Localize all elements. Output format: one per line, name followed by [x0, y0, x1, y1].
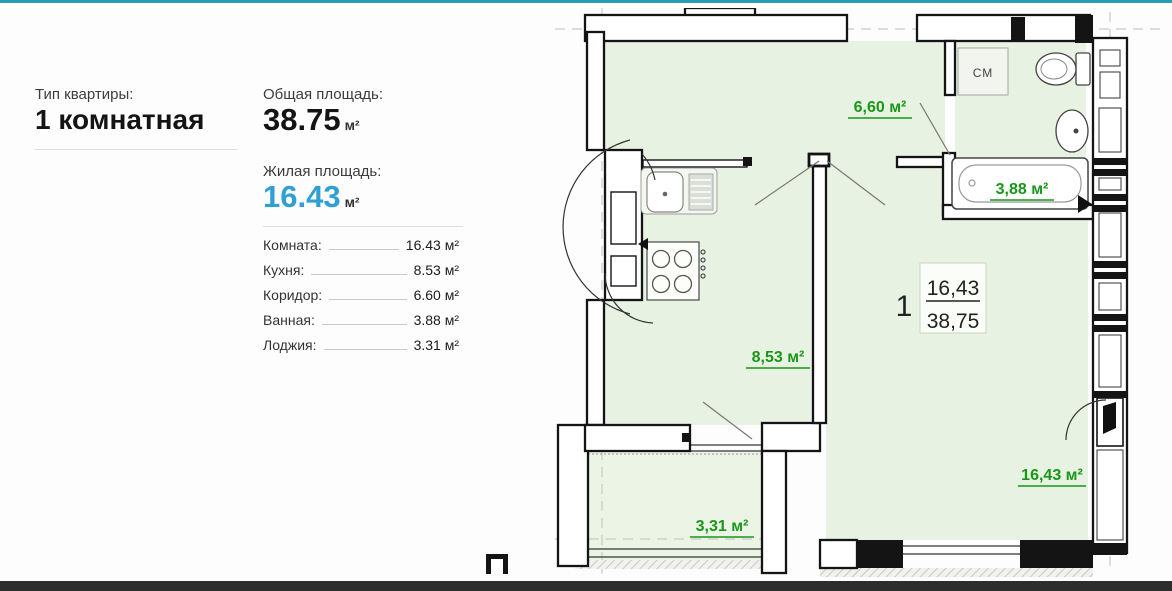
list-item-loggia: Лоджия:3.31 м² [263, 337, 459, 362]
facade-windows [1097, 50, 1123, 540]
living-area-unit: м² [345, 194, 360, 210]
bath-area-label: 3,88 м² [996, 181, 1049, 198]
page: Тип квартиры: 1 комнатная Общая площадь:… [0, 0, 1172, 591]
leader-line [311, 274, 406, 275]
floor-plan: СМ [555, 8, 1167, 580]
room-label: Лоджия: [263, 337, 317, 353]
room-label: Комната: [263, 237, 322, 253]
washing-machine: СМ [958, 48, 1008, 95]
living-area-value: 16.43м² [263, 179, 360, 215]
total-area-value: 38.75м² [263, 102, 360, 138]
living-area-number: 16.43 [263, 179, 341, 214]
room-label: Ванная: [263, 312, 315, 328]
room-value: 3.31 м² [414, 337, 459, 353]
living-area-label: Жилая площадь: [263, 163, 381, 180]
leader-line [324, 349, 407, 350]
fraction-living-area: 16,43 [927, 277, 980, 300]
toilet [1036, 53, 1090, 85]
list-item-room: Комната:16.43 м² [263, 237, 459, 262]
type-value: 1 комнатная [35, 104, 204, 136]
kitchen-sink [641, 168, 717, 214]
kitchen-area-label: 8,53 м² [752, 349, 805, 366]
hall-area-label: 6,60 м² [854, 99, 907, 116]
room-value: 8.53 м² [414, 262, 459, 278]
total-area-label: Общая площадь: [263, 86, 383, 103]
leader-line [329, 249, 399, 250]
floor-plan-drawing: СМ [555, 8, 1167, 580]
room-value: 16.43 м² [406, 237, 459, 253]
washer-label: СМ [973, 66, 994, 80]
type-label: Тип квартиры: [35, 86, 133, 103]
room-value: 6.60 м² [414, 287, 459, 303]
room-label: Кухня: [263, 262, 304, 278]
list-item-corridor: Коридор:6.60 м² [263, 287, 459, 312]
list-item-kitchen: Кухня:8.53 м² [263, 262, 459, 287]
washbasin [1056, 110, 1088, 152]
room-area-label: 16,43 м² [1021, 467, 1083, 484]
total-area-unit: м² [345, 117, 360, 133]
leader-line [322, 324, 407, 325]
top-accent-rule [0, 0, 1172, 3]
divider-right [263, 226, 463, 227]
list-item-bathroom: Ванная:3.88 м² [263, 312, 459, 337]
divider-left [35, 149, 237, 150]
adjacent-section-wall-stub [486, 554, 508, 574]
room-area-list: Комната:16.43 м² Кухня:8.53 м² Коридор:6… [263, 237, 459, 362]
leader-line [329, 299, 406, 300]
stove [647, 242, 705, 300]
fraction-total-area: 38,75 [927, 310, 980, 333]
bottom-bar [0, 581, 1172, 591]
apartment-number: 1 [896, 290, 913, 323]
total-area-number: 38.75 [263, 102, 341, 137]
loggia-area-label: 3,31 м² [696, 518, 749, 535]
room-label: Коридор: [263, 287, 322, 303]
room-value: 3.88 м² [414, 312, 459, 328]
